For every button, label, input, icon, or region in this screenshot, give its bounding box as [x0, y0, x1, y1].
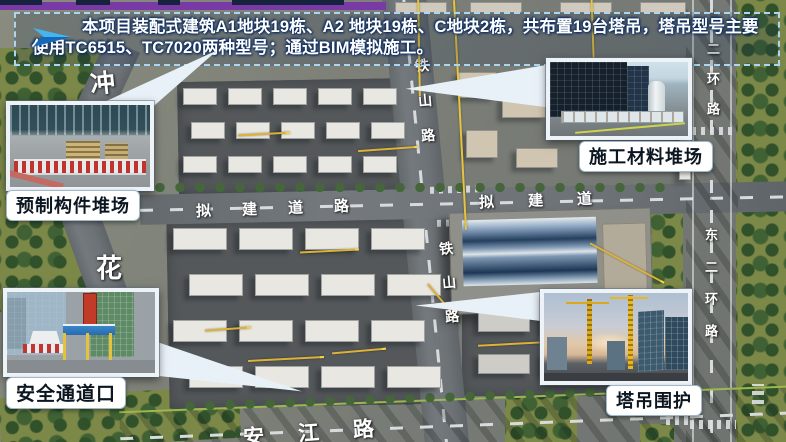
banner-text: 本项目装配式建筑A1地块19栋、A2 地块19栋、C地块2栋，共布置19台塔吊，… — [16, 14, 778, 59]
header-strip-segment — [76, 0, 110, 5]
tower-building — [550, 62, 627, 117]
tent — [29, 331, 60, 344]
building-block — [173, 228, 227, 250]
building-block — [281, 122, 315, 139]
inset-safety-gate-photo — [3, 288, 159, 377]
building-block — [305, 320, 359, 342]
building-block — [318, 156, 352, 173]
ground — [7, 360, 155, 373]
road-line — [575, 123, 685, 135]
crosswalk — [752, 384, 764, 404]
arrow-icon — [30, 22, 74, 52]
building-block — [183, 88, 217, 105]
building-block — [173, 320, 227, 342]
road-label-chong: 冲 — [88, 63, 117, 101]
building-block — [326, 122, 360, 139]
crosswalk — [690, 420, 736, 429]
header-strip-segment — [0, 0, 42, 5]
building-block — [191, 122, 225, 139]
road-label-ring-lower: 东二环路 — [701, 228, 720, 356]
fenced-yard — [561, 111, 684, 123]
building-block — [318, 88, 352, 105]
ground — [544, 373, 688, 381]
inset-crane-fence-photo — [540, 289, 692, 385]
building-block — [305, 228, 359, 250]
prefab-yard-scene — [10, 105, 150, 187]
building-left-wing — [7, 298, 26, 348]
label-crane-fence: 塔吊围护 — [606, 385, 702, 416]
building-block — [228, 156, 262, 173]
facade — [10, 105, 150, 135]
building-silhouette — [607, 341, 624, 371]
material-stack — [66, 141, 100, 161]
building-block — [273, 88, 307, 105]
building-block — [516, 148, 558, 168]
trees-right-strip — [736, 0, 786, 442]
building-block — [387, 366, 441, 388]
inset-material-yard-photo — [546, 58, 692, 140]
label-prefab-yard: 预制构件堆场 — [6, 190, 140, 221]
building-block — [321, 274, 375, 296]
cement-silo — [648, 81, 665, 112]
glass-tower — [665, 317, 688, 371]
building-block — [371, 122, 405, 139]
slide-canvas: 铁山路 铁山路 拟建道路 拟建道 二环路 东二环路 安江路 冲 花 本项目装配式… — [0, 0, 786, 442]
label-safety-gate: 安全通道口 — [6, 377, 126, 409]
building-block — [236, 122, 270, 139]
crane-jib — [610, 297, 647, 299]
building-block — [189, 274, 243, 296]
road-label-hua: 花 — [96, 248, 122, 285]
safety-gate-scene — [7, 292, 155, 373]
building-block — [255, 274, 309, 296]
crane-mast — [587, 299, 591, 364]
building-block — [371, 228, 425, 250]
header-strip-segment — [232, 0, 344, 5]
building-block — [239, 228, 293, 250]
building-silhouette — [547, 337, 567, 370]
building-block — [321, 366, 375, 388]
tower-building — [627, 66, 649, 113]
gate-fence — [23, 344, 63, 353]
building-block — [228, 88, 262, 105]
building-block — [363, 88, 397, 105]
safety-fence — [14, 159, 146, 174]
crane-jib — [566, 302, 609, 304]
material-stack — [105, 143, 127, 159]
material-yard-scene — [550, 62, 688, 136]
crane-fence-scene — [544, 293, 688, 381]
glass-tower — [638, 310, 664, 372]
label-material-yard: 施工材料堆场 — [579, 141, 713, 172]
building-block — [273, 156, 307, 173]
building-block — [239, 320, 293, 342]
inset-prefab-yard-photo — [6, 101, 154, 191]
building-block — [371, 320, 425, 342]
crosswalk — [666, 416, 688, 425]
building-block — [363, 156, 397, 173]
header-strip-segment — [158, 0, 180, 5]
crane-mast — [628, 295, 633, 369]
warehouse-roof — [462, 217, 598, 286]
building-block — [478, 354, 530, 374]
building-block — [466, 130, 498, 158]
canopy-legs — [63, 333, 115, 361]
building-block — [183, 156, 217, 173]
